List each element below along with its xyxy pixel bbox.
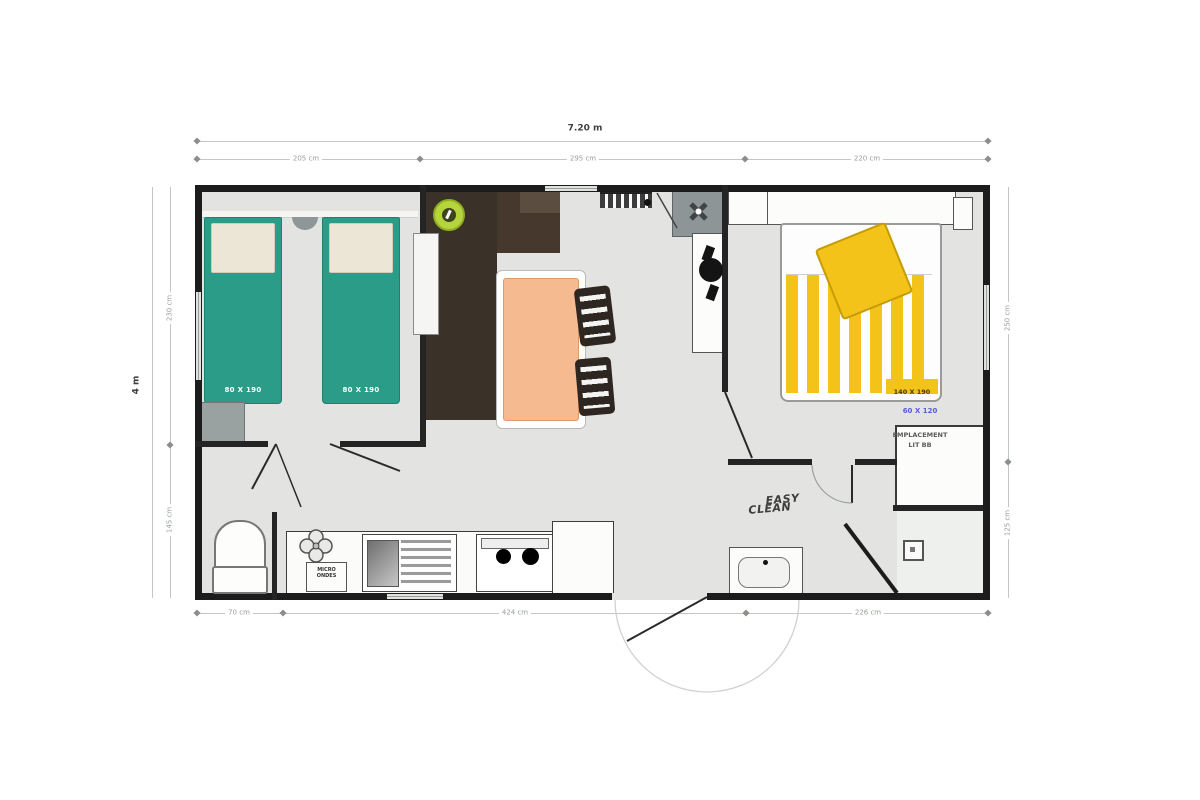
- dim-left-2: 145 cm: [166, 504, 175, 536]
- dim-tick: [193, 609, 200, 616]
- hob-controls: [481, 538, 549, 549]
- pillow: [211, 223, 275, 273]
- hob-unit: [476, 534, 553, 592]
- wardrobe-divider: [767, 191, 768, 224]
- dim-bottom-1: 70 cm: [225, 609, 253, 618]
- double-bed-label-chip: 140 X 190: [886, 379, 938, 394]
- microwave-label-2: ONDES: [307, 573, 346, 579]
- wall-bottom: [195, 593, 990, 600]
- fridge-cabinet: [552, 521, 614, 595]
- shelf-partition: [692, 233, 724, 353]
- toilet-tank: [212, 566, 268, 594]
- wall-left: [195, 185, 202, 600]
- window-right: [984, 285, 989, 370]
- double-bed-label: 140 X 190: [894, 388, 931, 396]
- wall-bedroom2-bath-b: [855, 459, 897, 465]
- entrance-door-opening: [612, 593, 707, 600]
- dim-tick: [742, 609, 749, 616]
- shower-drain-icon: [903, 540, 924, 561]
- wall-bedroom2-bath-a: [728, 459, 812, 465]
- burner-1: [496, 549, 511, 564]
- wall-right: [983, 185, 990, 600]
- dim-tick: [166, 441, 173, 448]
- round-sink-icon: [433, 199, 465, 231]
- dim-tick: [984, 137, 991, 144]
- twin-bed-1-label: 80 X 190: [205, 386, 281, 394]
- baby-bed-line1: EMPLACEMENT: [870, 431, 970, 439]
- dim-tick: [741, 155, 748, 162]
- floorplan-canvas: 7.20 m 205 cm 295 cm 220 cm 70 cm 424 cm…: [0, 0, 1200, 800]
- dim-top-1: 205 cm: [290, 155, 322, 164]
- sink-basin: [367, 540, 399, 587]
- dim-overall-height: 4 m: [133, 373, 142, 398]
- dim-top-2: 295 cm: [567, 155, 599, 164]
- wardrobe-headboard: [728, 190, 956, 225]
- sink-drainer: [401, 540, 451, 585]
- window-top: [545, 186, 597, 191]
- wall-wc-right: [272, 512, 277, 600]
- table-top: [503, 278, 579, 421]
- wall-shower-top: [893, 505, 983, 511]
- dim-top-3: 220 cm: [851, 155, 883, 164]
- wall-partition-living: [722, 185, 728, 392]
- dim-left-1: 230 cm: [166, 292, 175, 324]
- chair-slats: [580, 365, 610, 409]
- chair-2: [575, 357, 616, 417]
- dim-right-2: 125 cm: [1004, 507, 1013, 539]
- dim-line-left-inner: [170, 187, 171, 598]
- dim-line-left-outer: [152, 187, 153, 598]
- window-left: [196, 292, 201, 380]
- twin-bed-2-label: 80 X 190: [323, 386, 399, 394]
- dim-bottom-3: 226 cm: [852, 609, 884, 618]
- dim-tick: [416, 155, 423, 162]
- dim-overall-width: 7.20 m: [565, 125, 606, 134]
- boiler-unit: [672, 188, 727, 237]
- pillow: [329, 223, 393, 273]
- chair-1: [574, 285, 617, 347]
- baby-bed-note: 60 X 120 EMPLACEMENT LIT BB: [870, 407, 970, 449]
- baby-bed-line2: LIT BB: [870, 441, 970, 449]
- baby-bed-size: 60 X 120: [870, 407, 970, 415]
- drain-inner: [910, 547, 915, 552]
- dim-tick: [279, 609, 286, 616]
- twin-bed-1: 80 X 190: [204, 217, 282, 404]
- nightstand-corner: [198, 402, 245, 442]
- twin-bed-2: 80 X 190: [322, 217, 400, 404]
- chair-slats: [580, 294, 611, 339]
- double-bed: 140 X 190: [780, 223, 942, 402]
- dim-tick: [1004, 458, 1011, 465]
- door-leaf-entrance: [627, 597, 707, 641]
- faucet-dot: [763, 560, 768, 565]
- dim-tick: [984, 155, 991, 162]
- dim-right-1: 250 cm: [1004, 302, 1013, 334]
- dim-tick: [193, 155, 200, 162]
- dining-table: [496, 270, 586, 429]
- sink-unit: [362, 534, 457, 592]
- vent-knob: [644, 199, 651, 206]
- bedside-box: [953, 197, 973, 230]
- wall-bedroom1-bottom-a: [195, 441, 268, 447]
- wall-bedroom1-bottom-b: [340, 441, 426, 447]
- washbasin-unit: [729, 547, 803, 594]
- dim-tick: [193, 137, 200, 144]
- dim-tick: [984, 609, 991, 616]
- wardrobe-door: [413, 233, 439, 335]
- window-bottom: [387, 594, 443, 599]
- dim-line-top-outer: [197, 141, 988, 142]
- microwave-box: MICRO ONDES: [306, 562, 347, 592]
- dim-bottom-2: 424 cm: [499, 609, 531, 618]
- burner-2: [522, 548, 539, 565]
